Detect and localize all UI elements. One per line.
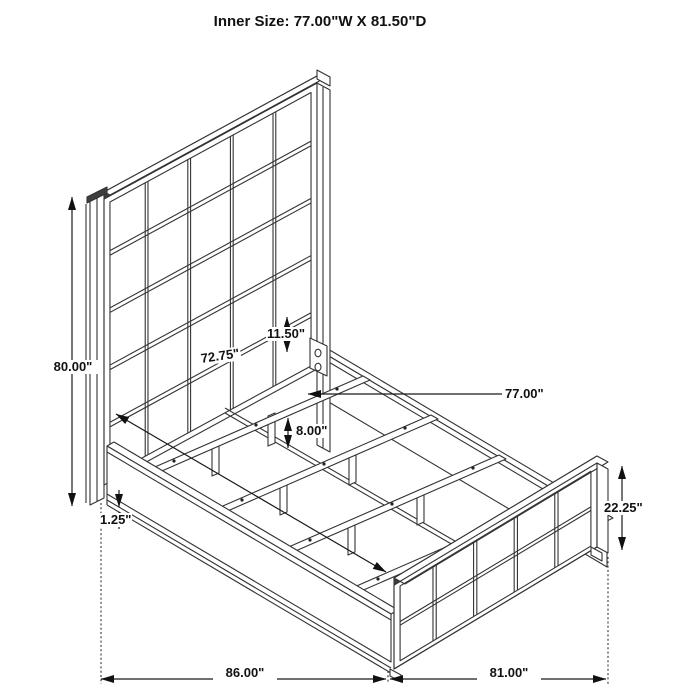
bracket-hole <box>315 363 321 371</box>
bracket-hole <box>315 349 321 357</box>
dim-overall-height-label: 80.00" <box>44 360 102 374</box>
diagram-title: Inner Size: 77.00"W X 81.50"D <box>0 13 640 30</box>
bed-frame <box>107 83 613 673</box>
dim-leg-height-label: 8.00" <box>295 424 328 438</box>
dim-bottom-lip-label: 1.25" <box>99 513 132 527</box>
dim-footboard-height-label: 22.25" <box>603 501 644 515</box>
headboard <box>86 70 330 505</box>
dim-inner-width-label: 77.00" <box>504 387 545 401</box>
dim-overall-length-label: 86.00" <box>213 666 277 680</box>
bed-line-drawing <box>0 0 700 700</box>
dim-rail-height-label: 11.50" <box>266 327 306 341</box>
bed-dimension-diagram: Inner Size: 77.00"W X 81.50"D <box>0 0 700 700</box>
footboard-left-foot <box>390 669 401 682</box>
dim-overall-width-label: 81.00" <box>477 666 541 680</box>
headboard-cap-top <box>104 76 323 195</box>
headboard-panel-grid <box>104 83 317 485</box>
